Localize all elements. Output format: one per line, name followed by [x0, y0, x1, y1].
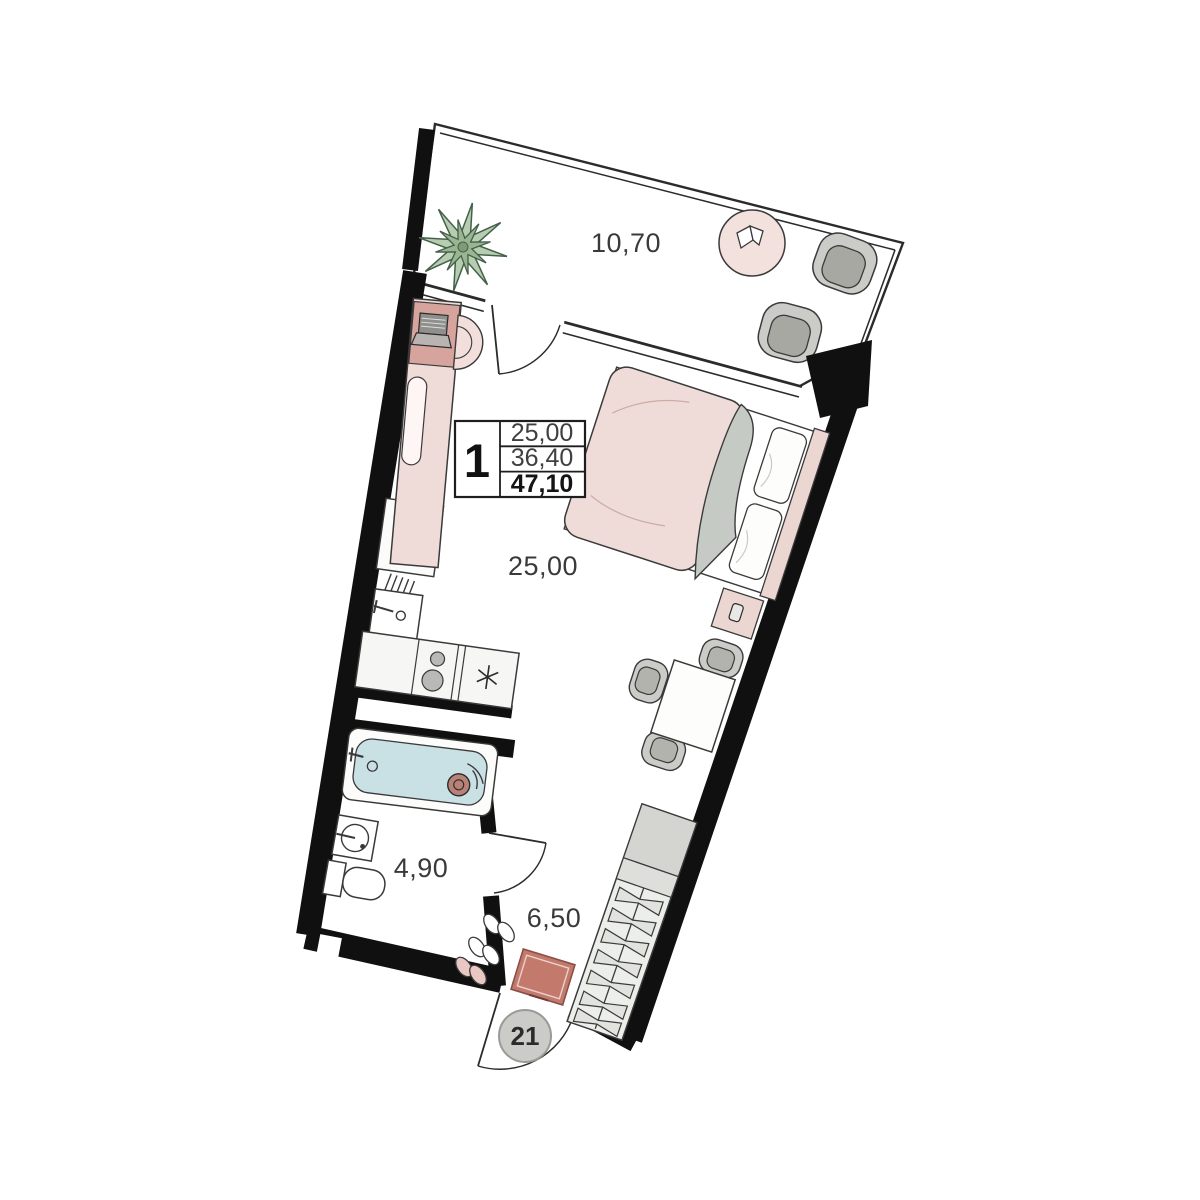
apartment-info-box: 1 25,00 36,40 47,10: [455, 419, 585, 498]
floor-plan-page: 1 25,00 36,40 47,10 10,70 25,00 4,90 6,5…: [0, 0, 1200, 1200]
toilet-bowl: [341, 865, 388, 902]
hallway-area-label: 6,50: [527, 903, 582, 933]
balcony-area-label: 10,70: [591, 228, 661, 258]
kitchen-sink: [369, 589, 423, 639]
unit-number: 21: [511, 1021, 540, 1051]
living-area-value: 25,00: [511, 419, 574, 447]
wall-notch: [316, 934, 342, 960]
balcony-round-table: [719, 210, 785, 276]
bathroom-door-leaf: [489, 833, 546, 843]
total-area-value: 47,10: [511, 470, 574, 498]
toilet: [323, 860, 388, 904]
living-room-area-label: 25,00: [508, 551, 578, 581]
nightstand: [711, 588, 763, 639]
area-without-balcony-value: 36,40: [511, 444, 574, 472]
floor-plan-drawing: 1 25,00 36,40 47,10 10,70 25,00 4,90 6,5…: [0, 0, 1200, 1200]
unit-number-badge: 21: [499, 1010, 551, 1062]
washbasin: [332, 815, 378, 861]
desk-chair: [453, 315, 485, 371]
entrance-door-leaf: [478, 993, 500, 1066]
rooms-count: 1: [464, 434, 490, 487]
pouf: [511, 949, 575, 1005]
bathroom-door-swing-arc: [494, 843, 546, 893]
bathroom-area-label: 4,90: [394, 853, 449, 883]
